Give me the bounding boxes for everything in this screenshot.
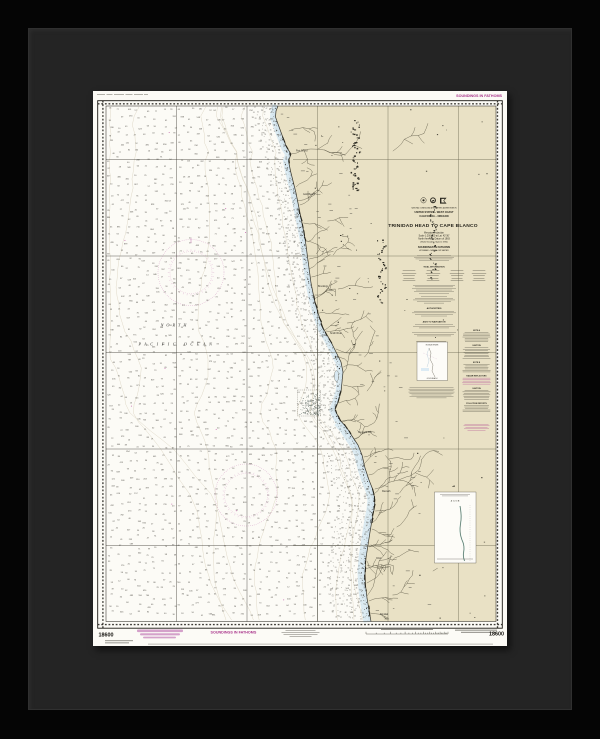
svg-text:6: 6 [342, 522, 343, 524]
svg-text:305: 305 [243, 462, 247, 464]
svg-text:86: 86 [189, 537, 192, 539]
svg-text:371: 371 [136, 385, 140, 387]
svg-text:16: 16 [179, 447, 182, 449]
svg-text:68: 68 [216, 328, 219, 330]
svg-text:820: 820 [261, 244, 265, 246]
svg-text:37: 37 [283, 213, 285, 215]
svg-text:213: 213 [181, 589, 185, 591]
svg-text:402: 402 [121, 296, 125, 298]
svg-text:69: 69 [275, 563, 278, 565]
svg-text:62: 62 [231, 354, 234, 356]
svg-text:819: 819 [151, 380, 155, 382]
svg-text:483: 483 [130, 595, 134, 597]
svg-text:28: 28 [264, 111, 266, 113]
svg-text:82: 82 [234, 186, 237, 188]
svg-text:41: 41 [302, 469, 305, 471]
svg-text:47: 47 [163, 243, 166, 245]
svg-text:83: 83 [217, 344, 220, 346]
svg-text:27: 27 [335, 470, 337, 472]
svg-text:54: 54 [296, 214, 298, 216]
svg-text:53: 53 [292, 202, 294, 204]
svg-text:76: 76 [253, 570, 256, 572]
svg-text:620: 620 [143, 590, 147, 592]
svg-text:72: 72 [226, 302, 229, 304]
svg-text:90: 90 [267, 434, 270, 436]
svg-text:47: 47 [192, 564, 195, 566]
svg-text:33: 33 [338, 506, 340, 508]
svg-text:44: 44 [248, 437, 251, 439]
svg-text:43: 43 [117, 132, 120, 134]
svg-text:64: 64 [278, 224, 281, 226]
svg-text:40: 40 [287, 257, 289, 259]
svg-text:76: 76 [278, 149, 281, 151]
svg-text:556: 556 [221, 142, 225, 144]
svg-text:86: 86 [283, 275, 286, 277]
svg-text:74: 74 [154, 536, 157, 538]
svg-text:19: 19 [310, 370, 313, 372]
svg-text:80: 80 [276, 480, 279, 482]
svg-text:55: 55 [348, 567, 350, 569]
svg-text:752: 752 [223, 397, 227, 399]
svg-text:10: 10 [224, 193, 227, 195]
svg-text:82: 82 [248, 369, 251, 371]
svg-text:78: 78 [277, 276, 280, 278]
svg-text:96: 96 [310, 561, 313, 563]
svg-text:536: 536 [275, 388, 279, 390]
svg-text:74: 74 [235, 412, 238, 414]
svg-text:60: 60 [218, 371, 221, 373]
svg-text:41: 41 [188, 119, 191, 121]
svg-text:456: 456 [242, 300, 246, 302]
svg-text:67: 67 [262, 276, 265, 278]
svg-text:49: 49 [107, 260, 110, 262]
svg-text:65: 65 [152, 561, 155, 563]
svg-text:33: 33 [187, 227, 190, 229]
svg-text:32: 32 [187, 337, 190, 339]
svg-text:87: 87 [113, 521, 116, 523]
svg-text:75: 75 [173, 380, 176, 382]
svg-text:66: 66 [109, 304, 112, 306]
svg-text:399: 399 [146, 488, 150, 490]
svg-text:141: 141 [126, 143, 130, 145]
svg-text:55: 55 [268, 199, 271, 201]
svg-text:47: 47 [286, 254, 288, 256]
svg-text:86: 86 [215, 397, 218, 399]
svg-text:33: 33 [334, 520, 336, 522]
svg-text:29: 29 [248, 523, 251, 525]
svg-text:545: 545 [145, 312, 149, 314]
svg-text:44: 44 [108, 284, 111, 286]
svg-text:76: 76 [196, 370, 199, 372]
svg-text:60: 60 [303, 293, 305, 295]
svg-text:546: 546 [217, 136, 221, 138]
svg-text:34: 34 [241, 293, 244, 295]
svg-text:73: 73 [222, 132, 225, 134]
svg-text:52: 52 [191, 393, 194, 395]
svg-text:661: 661 [285, 504, 289, 506]
svg-text:44: 44 [217, 428, 220, 430]
svg-text:642: 642 [188, 352, 192, 354]
svg-text:89: 89 [190, 379, 193, 381]
svg-text:84: 84 [276, 393, 279, 395]
svg-text:46: 46 [359, 498, 361, 500]
svg-text:43: 43 [181, 287, 184, 289]
svg-text:43: 43 [346, 599, 348, 601]
svg-text:33: 33 [278, 170, 280, 172]
svg-text:91: 91 [143, 498, 146, 500]
svg-text:38: 38 [198, 411, 201, 413]
svg-text:28: 28 [342, 483, 344, 485]
svg-text:26: 26 [179, 337, 182, 339]
svg-text:608: 608 [261, 342, 265, 344]
svg-text:481: 481 [188, 283, 192, 285]
svg-text:669: 669 [275, 497, 279, 499]
svg-text:61: 61 [297, 392, 300, 394]
svg-text:440: 440 [303, 605, 307, 607]
svg-text:30: 30 [294, 456, 297, 458]
svg-text:589: 589 [130, 543, 134, 545]
svg-text:23: 23 [242, 599, 245, 601]
svg-text:765: 765 [341, 455, 345, 457]
svg-text:92: 92 [196, 359, 199, 361]
svg-text:91: 91 [170, 258, 173, 260]
svg-text:76: 76 [196, 294, 199, 296]
svg-text:350: 350 [194, 154, 198, 156]
svg-text:204: 204 [297, 565, 301, 567]
svg-text:20: 20 [128, 564, 131, 566]
svg-text:99: 99 [148, 548, 151, 550]
svg-text:9: 9 [335, 526, 336, 528]
svg-text:438: 438 [232, 229, 236, 231]
svg-text:66: 66 [301, 452, 304, 454]
svg-text:360: 360 [156, 420, 160, 422]
svg-text:27: 27 [316, 342, 318, 344]
svg-text:21: 21 [266, 151, 268, 153]
svg-text:548: 548 [197, 117, 201, 119]
svg-text:324: 324 [152, 329, 156, 331]
svg-text:240: 240 [124, 413, 128, 415]
svg-text:90: 90 [234, 246, 237, 248]
svg-text:424: 424 [249, 346, 253, 348]
svg-text:50: 50 [334, 428, 336, 430]
svg-text:76: 76 [208, 546, 211, 548]
svg-text:47: 47 [182, 555, 185, 557]
svg-text:13: 13 [348, 459, 350, 461]
svg-text:91: 91 [302, 590, 305, 592]
svg-text:44: 44 [311, 360, 313, 362]
svg-text:26: 26 [169, 452, 172, 454]
svg-text:437: 437 [303, 505, 307, 507]
svg-text:29: 29 [117, 554, 120, 556]
svg-text:787: 787 [154, 149, 158, 151]
svg-text:North American Datum of 1983: North American Datum of 1983 [418, 238, 450, 241]
svg-text:70: 70 [143, 386, 146, 388]
svg-text:46: 46 [128, 518, 131, 520]
svg-text:740: 740 [179, 263, 183, 265]
svg-text:82: 82 [312, 481, 315, 483]
svg-text:477: 477 [121, 200, 125, 202]
svg-text:234: 234 [249, 110, 253, 112]
svg-text:8: 8 [343, 562, 344, 564]
svg-text:53: 53 [127, 194, 130, 196]
svg-text:19: 19 [340, 565, 343, 567]
svg-text:21: 21 [279, 309, 282, 311]
svg-text:Gold Beach: Gold Beach [303, 194, 316, 196]
svg-text:35: 35 [293, 430, 296, 432]
svg-text:714: 714 [190, 320, 194, 322]
svg-text:19: 19 [327, 354, 329, 356]
svg-text:14: 14 [322, 611, 325, 613]
svg-text:22: 22 [272, 141, 274, 143]
svg-text:763: 763 [292, 488, 296, 490]
svg-text:54: 54 [129, 614, 132, 616]
svg-text:58: 58 [213, 414, 216, 416]
svg-text:26: 26 [169, 581, 172, 583]
svg-text:81: 81 [161, 561, 164, 563]
svg-text:477: 477 [195, 603, 199, 605]
svg-text:3: 3 [319, 432, 320, 434]
svg-text:36: 36 [268, 589, 271, 591]
svg-text:92: 92 [292, 278, 295, 280]
svg-text:AUTHORITIES: AUTHORITIES [427, 307, 442, 310]
svg-text:849: 849 [117, 472, 121, 474]
svg-text:439: 439 [302, 545, 306, 547]
svg-text:19: 19 [214, 150, 217, 152]
svg-text:35: 35 [225, 236, 228, 238]
svg-text:12: 12 [266, 502, 269, 504]
svg-text:31: 31 [275, 444, 278, 446]
svg-text:50: 50 [349, 603, 352, 605]
svg-text:858: 858 [257, 367, 261, 369]
svg-text:70: 70 [287, 480, 290, 482]
svg-text:469: 469 [196, 245, 200, 247]
svg-text:359: 359 [196, 427, 200, 429]
svg-text:250: 250 [250, 396, 254, 398]
svg-text:35: 35 [332, 417, 334, 419]
svg-text:54: 54 [209, 402, 212, 404]
svg-text:29: 29 [218, 184, 221, 186]
svg-text:753: 753 [143, 420, 147, 422]
svg-text:7: 7 [335, 466, 336, 468]
svg-text:33: 33 [290, 215, 292, 217]
svg-text:432: 432 [110, 505, 114, 507]
svg-text:35: 35 [265, 157, 267, 159]
svg-text:56: 56 [285, 430, 288, 432]
svg-text:92: 92 [286, 578, 289, 580]
svg-text:28: 28 [109, 570, 112, 572]
svg-text:67: 67 [142, 283, 145, 285]
svg-text:550: 550 [139, 595, 143, 597]
svg-text:39: 39 [136, 246, 139, 248]
svg-text:51: 51 [208, 594, 211, 596]
svg-text:41: 41 [239, 371, 242, 373]
svg-text:69: 69 [153, 310, 156, 312]
svg-text:43: 43 [331, 550, 333, 552]
svg-text:881: 881 [212, 615, 216, 617]
svg-text:92: 92 [191, 556, 194, 558]
svg-text:72: 72 [160, 427, 163, 429]
svg-text:18600: 18600 [99, 633, 114, 639]
svg-text:56: 56 [341, 485, 344, 487]
svg-text:57: 57 [342, 577, 344, 579]
svg-text:74: 74 [276, 143, 279, 145]
svg-text:26: 26 [234, 606, 237, 608]
svg-text:49: 49 [286, 233, 289, 235]
svg-text:998: 998 [190, 183, 194, 185]
svg-text:938: 938 [110, 329, 114, 331]
svg-text:37: 37 [156, 209, 159, 211]
svg-text:18: 18 [265, 263, 268, 265]
svg-text:681: 681 [195, 547, 199, 549]
svg-text:27: 27 [322, 538, 325, 540]
svg-text:16: 16 [347, 577, 349, 579]
svg-text:863: 863 [177, 268, 181, 270]
svg-text:76: 76 [226, 378, 229, 380]
svg-text:834: 834 [249, 305, 253, 307]
svg-text:310: 310 [136, 479, 140, 481]
svg-text:54: 54 [225, 426, 228, 428]
svg-text:30: 30 [306, 352, 308, 354]
svg-text:107: 107 [323, 511, 327, 513]
svg-text:216: 216 [206, 384, 210, 386]
svg-text:23: 23 [345, 503, 347, 505]
svg-text:34: 34 [297, 294, 300, 296]
svg-text:34: 34 [190, 127, 193, 129]
svg-text:87: 87 [250, 487, 253, 489]
svg-text:782: 782 [120, 515, 124, 517]
svg-text:38: 38 [358, 598, 360, 600]
svg-text:58: 58 [327, 398, 329, 400]
svg-text:12: 12 [303, 331, 305, 333]
svg-text:48: 48 [139, 404, 142, 406]
svg-text:50: 50 [319, 335, 321, 337]
svg-text:32: 32 [275, 196, 277, 198]
svg-text:28: 28 [278, 215, 280, 217]
svg-text:877: 877 [278, 182, 282, 184]
svg-text:819: 819 [217, 563, 221, 565]
svg-text:83: 83 [135, 371, 138, 373]
svg-text:77: 77 [296, 556, 299, 558]
svg-text:79: 79 [241, 360, 244, 362]
svg-text:58: 58 [336, 382, 338, 384]
svg-text:547: 547 [231, 261, 235, 263]
svg-text:157: 157 [134, 493, 138, 495]
svg-text:47: 47 [368, 498, 370, 500]
svg-text:29: 29 [156, 587, 159, 589]
svg-text:24: 24 [232, 468, 235, 470]
svg-text:14: 14 [358, 573, 360, 575]
svg-text:31: 31 [242, 229, 245, 231]
svg-text:592: 592 [155, 191, 159, 193]
svg-text:99: 99 [171, 496, 174, 498]
svg-text:26: 26 [275, 177, 278, 179]
svg-text:585: 585 [168, 335, 172, 337]
svg-text:21: 21 [331, 570, 334, 572]
svg-text:16: 16 [314, 578, 317, 580]
svg-text:43: 43 [304, 325, 306, 327]
svg-text:500: 500 [214, 494, 218, 496]
svg-text:73: 73 [286, 553, 289, 555]
svg-text:70: 70 [151, 557, 154, 559]
svg-text:48: 48 [363, 548, 365, 550]
svg-text:44: 44 [111, 530, 114, 532]
svg-text:11: 11 [244, 176, 247, 178]
svg-text:52: 52 [145, 200, 148, 202]
svg-text:715: 715 [239, 548, 243, 550]
svg-text:66: 66 [235, 389, 238, 391]
svg-text:64: 64 [137, 166, 140, 168]
svg-text:14: 14 [227, 285, 230, 287]
svg-text:74: 74 [306, 388, 309, 390]
svg-text:564: 564 [274, 522, 278, 524]
svg-text:281: 281 [199, 109, 203, 111]
svg-text:371: 371 [287, 210, 291, 212]
svg-text:12: 12 [292, 304, 294, 306]
svg-text:11: 11 [351, 454, 353, 456]
svg-text:66: 66 [296, 526, 299, 528]
svg-text:76: 76 [227, 168, 230, 170]
svg-text:64: 64 [269, 537, 272, 539]
svg-text:42: 42 [147, 271, 150, 273]
svg-text:557: 557 [161, 269, 165, 271]
svg-text:62: 62 [171, 529, 174, 531]
svg-text:14: 14 [125, 135, 128, 137]
svg-text:25: 25 [222, 557, 225, 559]
svg-text:45: 45 [135, 209, 138, 211]
svg-text:21: 21 [296, 299, 298, 301]
svg-text:733: 733 [241, 118, 245, 120]
svg-text:736: 736 [267, 149, 271, 151]
svg-text:47: 47 [147, 538, 150, 540]
svg-text:33: 33 [352, 494, 354, 496]
svg-text:42: 42 [326, 343, 328, 345]
svg-text:84: 84 [303, 538, 306, 540]
svg-text:47: 47 [183, 358, 186, 360]
svg-text:42: 42 [128, 219, 131, 221]
svg-text:13: 13 [145, 511, 148, 513]
svg-text:94: 94 [337, 497, 340, 499]
svg-text:51: 51 [262, 146, 264, 148]
svg-text:545: 545 [137, 419, 141, 421]
svg-text:53: 53 [222, 478, 225, 480]
svg-text:88: 88 [265, 460, 268, 462]
svg-text:RADAR REFLECTORS: RADAR REFLECTORS [466, 375, 487, 378]
svg-text:77: 77 [116, 109, 119, 111]
svg-text:76: 76 [258, 355, 261, 357]
svg-text:530: 530 [320, 487, 324, 489]
svg-text:12: 12 [268, 355, 271, 357]
svg-text:60: 60 [351, 607, 353, 609]
svg-text:26: 26 [288, 285, 290, 287]
svg-text:72: 72 [111, 446, 114, 448]
svg-text:616: 616 [117, 493, 121, 495]
svg-text:360: 360 [300, 403, 304, 405]
svg-text:11: 11 [344, 510, 346, 512]
svg-text:34: 34 [366, 525, 368, 527]
svg-text:346: 346 [121, 480, 125, 482]
svg-text:22: 22 [296, 317, 299, 319]
svg-text:684: 684 [230, 367, 234, 369]
svg-text:93: 93 [126, 203, 129, 205]
svg-text:331: 331 [173, 116, 177, 118]
svg-text:577: 577 [214, 258, 218, 260]
svg-text:10: 10 [284, 387, 287, 389]
svg-text:77: 77 [155, 111, 158, 113]
svg-text:91: 91 [136, 196, 139, 198]
svg-text:52: 52 [312, 313, 314, 315]
svg-text:39: 39 [281, 191, 283, 193]
svg-text:846: 846 [206, 196, 210, 198]
